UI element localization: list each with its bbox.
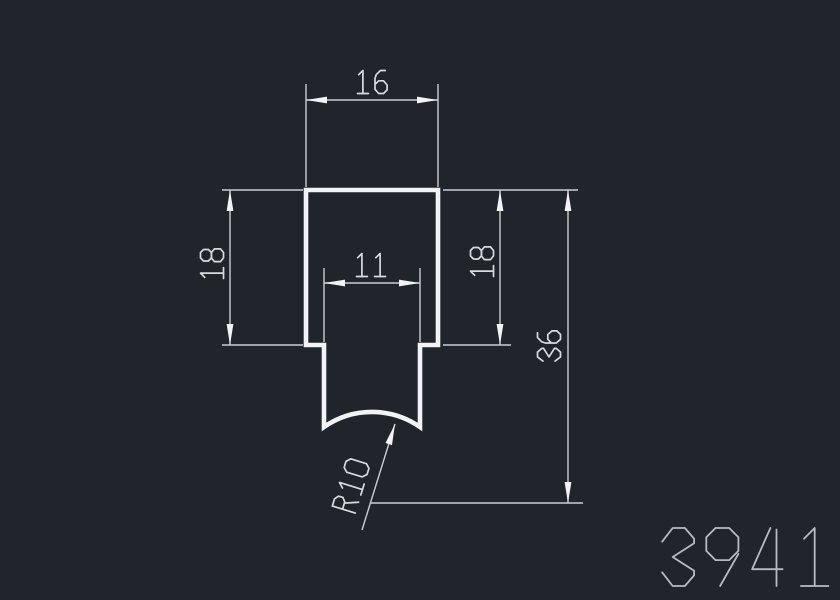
part-number	[662, 528, 828, 586]
dimension-width-16	[306, 71, 438, 188]
dimension-label-height-36	[538, 331, 561, 361]
dimension-radius-r10	[332, 424, 395, 530]
dimension-height-18-left	[201, 190, 304, 345]
dimension-height-18-right	[443, 190, 511, 345]
dimension-label-width-16	[358, 71, 388, 94]
cad-viewport	[0, 0, 840, 600]
dimension-label-radius-r10	[332, 458, 370, 513]
cad-drawing	[0, 0, 840, 600]
profile-outline	[306, 190, 438, 427]
dimension-height-36	[371, 190, 583, 503]
dimension-label-height-18-left	[201, 249, 224, 279]
dimension-label-height-18-right	[471, 247, 494, 277]
dimension-label-width-11	[357, 254, 386, 277]
dimension-width-11	[324, 254, 420, 343]
